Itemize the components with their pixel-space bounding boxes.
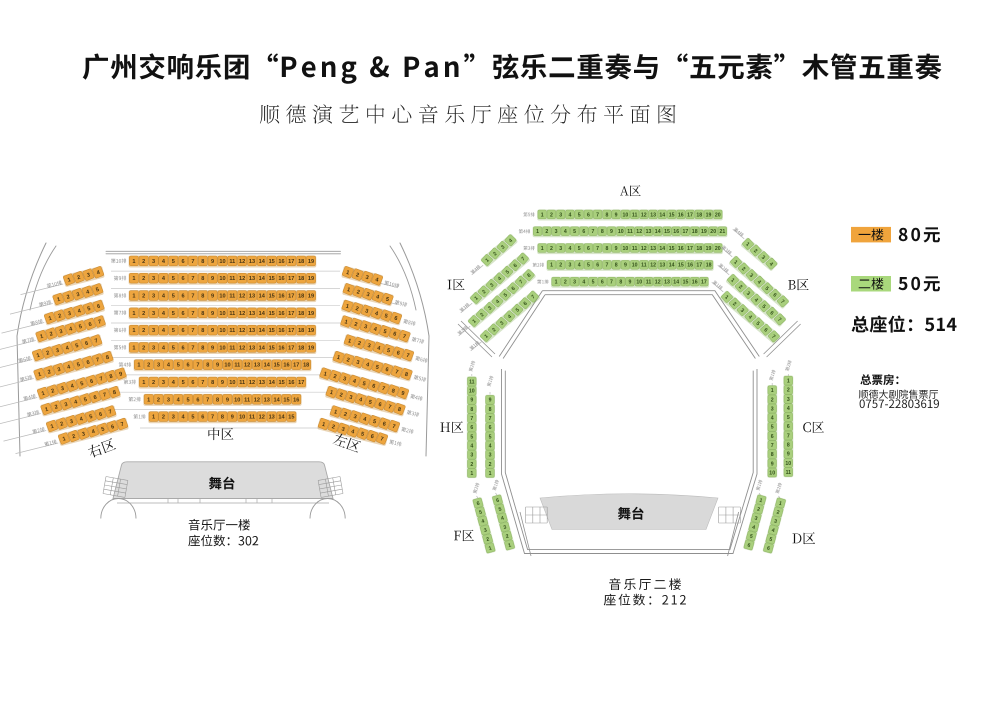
svg-text:9: 9 (231, 415, 234, 421)
svg-text:7: 7 (605, 263, 608, 269)
svg-text:8: 8 (201, 294, 204, 300)
svg-text:14: 14 (259, 328, 266, 334)
svg-text:18: 18 (303, 363, 309, 369)
svg-text:9: 9 (624, 263, 627, 269)
svg-text:10: 10 (234, 397, 240, 403)
svg-text:16: 16 (687, 263, 693, 269)
svg-text:8: 8 (211, 380, 214, 386)
svg-text:1: 1 (132, 259, 135, 265)
svg-text:15: 15 (683, 280, 689, 286)
svg-text:7: 7 (191, 276, 194, 282)
svg-text:6: 6 (182, 276, 185, 282)
svg-text:4: 4 (489, 443, 492, 449)
svg-text:18: 18 (696, 246, 702, 252)
svg-text:9: 9 (787, 452, 790, 458)
svg-text:12: 12 (239, 328, 245, 334)
svg-text:2: 2 (142, 276, 145, 282)
svg-text:2: 2 (162, 415, 165, 421)
svg-text:4: 4 (771, 416, 774, 422)
svg-text:4: 4 (470, 444, 473, 450)
svg-text:1: 1 (541, 246, 544, 252)
svg-text:2: 2 (142, 311, 145, 317)
svg-text:5: 5 (489, 434, 492, 440)
svg-text:20: 20 (715, 212, 721, 218)
svg-text:3: 3 (152, 311, 155, 317)
svg-text:6: 6 (587, 246, 590, 252)
svg-text:5: 5 (172, 259, 175, 265)
svg-text:17: 17 (687, 246, 693, 252)
svg-text:8: 8 (605, 246, 608, 252)
svg-text:11: 11 (244, 397, 250, 403)
svg-text:5: 5 (182, 380, 185, 386)
svg-text:4: 4 (568, 212, 571, 218)
svg-text:7: 7 (211, 415, 214, 421)
svg-text:3: 3 (157, 363, 160, 369)
svg-text:13: 13 (646, 229, 652, 235)
svg-text:6: 6 (470, 425, 473, 431)
svg-text:11: 11 (229, 294, 235, 300)
svg-text:11: 11 (627, 229, 633, 235)
svg-text:13: 13 (249, 345, 255, 351)
svg-text:19: 19 (308, 328, 314, 334)
svg-text:12: 12 (636, 229, 642, 235)
svg-text:2: 2 (559, 263, 562, 269)
svg-text:13: 13 (660, 263, 666, 269)
svg-text:15: 15 (669, 246, 675, 252)
svg-text:6: 6 (489, 425, 492, 431)
svg-text:14: 14 (259, 311, 266, 317)
svg-text:6: 6 (182, 259, 185, 265)
svg-text:8: 8 (601, 229, 604, 235)
svg-text:5: 5 (172, 294, 175, 300)
svg-text:1: 1 (137, 363, 140, 369)
svg-text:1: 1 (541, 212, 544, 218)
svg-text:19: 19 (706, 212, 712, 218)
svg-text:16: 16 (278, 294, 284, 300)
svg-text:8: 8 (201, 328, 204, 334)
svg-text:4: 4 (582, 280, 585, 286)
svg-text:13: 13 (650, 212, 656, 218)
svg-text:16: 16 (678, 246, 684, 252)
svg-text:19: 19 (308, 294, 314, 300)
svg-text:18: 18 (298, 276, 304, 282)
svg-text:9: 9 (211, 276, 214, 282)
svg-text:10: 10 (785, 461, 791, 467)
svg-text:8: 8 (615, 263, 618, 269)
svg-text:11: 11 (229, 328, 235, 334)
svg-text:4: 4 (568, 246, 571, 252)
svg-text:13: 13 (259, 380, 265, 386)
svg-text:12: 12 (641, 246, 647, 252)
svg-text:7: 7 (610, 280, 613, 286)
svg-text:10: 10 (219, 345, 225, 351)
svg-text:3: 3 (162, 380, 165, 386)
svg-text:1: 1 (550, 263, 553, 269)
svg-text:6: 6 (582, 229, 585, 235)
svg-text:11: 11 (234, 363, 240, 369)
svg-text:14: 14 (659, 246, 665, 252)
svg-text:10: 10 (618, 229, 624, 235)
svg-text:19: 19 (706, 246, 712, 252)
svg-text:3: 3 (569, 263, 572, 269)
svg-text:4: 4 (787, 406, 790, 412)
svg-text:19: 19 (308, 311, 314, 317)
svg-text:5: 5 (771, 425, 774, 431)
svg-text:2: 2 (771, 397, 774, 403)
svg-text:8: 8 (787, 443, 790, 449)
svg-text:5: 5 (573, 229, 576, 235)
svg-text:18: 18 (706, 263, 712, 269)
svg-text:8: 8 (619, 280, 622, 286)
svg-text:17: 17 (288, 276, 294, 282)
svg-text:2: 2 (142, 259, 145, 265)
svg-text:2: 2 (157, 397, 160, 403)
svg-text:16: 16 (283, 363, 289, 369)
svg-text:5: 5 (787, 415, 790, 421)
svg-text:17: 17 (288, 345, 294, 351)
svg-text:3: 3 (152, 328, 155, 334)
svg-text:7: 7 (787, 433, 790, 439)
svg-text:16: 16 (692, 280, 698, 286)
svg-text:6: 6 (182, 294, 185, 300)
svg-text:13: 13 (650, 246, 656, 252)
svg-text:3: 3 (152, 259, 155, 265)
svg-text:12: 12 (650, 263, 656, 269)
svg-text:13: 13 (664, 280, 670, 286)
svg-text:9: 9 (216, 363, 219, 369)
svg-text:9: 9 (211, 328, 214, 334)
svg-text:14: 14 (259, 345, 266, 351)
svg-text:13: 13 (269, 415, 275, 421)
svg-text:15: 15 (269, 259, 275, 265)
svg-text:2: 2 (142, 345, 145, 351)
svg-text:3: 3 (573, 280, 576, 286)
svg-text:11: 11 (632, 212, 638, 218)
svg-text:2: 2 (470, 462, 473, 468)
svg-text:11: 11 (229, 276, 235, 282)
svg-text:14: 14 (669, 263, 675, 269)
svg-text:18: 18 (298, 311, 304, 317)
svg-text:6: 6 (182, 311, 185, 317)
svg-text:16: 16 (288, 380, 294, 386)
svg-text:17: 17 (288, 259, 294, 265)
svg-text:19: 19 (701, 229, 707, 235)
svg-text:15: 15 (269, 276, 275, 282)
svg-text:15: 15 (274, 363, 280, 369)
svg-text:10: 10 (219, 259, 225, 265)
svg-text:13: 13 (249, 328, 255, 334)
svg-text:7: 7 (596, 246, 599, 252)
svg-text:10: 10 (219, 276, 225, 282)
svg-text:11: 11 (249, 415, 255, 421)
svg-text:2: 2 (564, 280, 567, 286)
svg-text:1: 1 (132, 311, 135, 317)
svg-text:7: 7 (191, 328, 194, 334)
svg-text:9: 9 (211, 311, 214, 317)
svg-text:8: 8 (605, 212, 608, 218)
svg-text:3: 3 (555, 229, 558, 235)
svg-text:14: 14 (259, 294, 266, 300)
svg-text:14: 14 (259, 276, 266, 282)
svg-text:9: 9 (470, 398, 473, 404)
svg-text:15: 15 (283, 397, 289, 403)
svg-text:16: 16 (673, 229, 679, 235)
svg-text:13: 13 (249, 294, 255, 300)
svg-text:5: 5 (191, 415, 194, 421)
svg-text:2: 2 (142, 294, 145, 300)
svg-text:3: 3 (489, 453, 492, 459)
svg-text:6: 6 (596, 263, 599, 269)
svg-text:7: 7 (191, 259, 194, 265)
svg-text:20: 20 (710, 229, 716, 235)
svg-text:10: 10 (219, 328, 225, 334)
svg-text:13: 13 (264, 397, 270, 403)
svg-text:15: 15 (669, 212, 675, 218)
svg-text:16: 16 (293, 397, 299, 403)
svg-text:19: 19 (308, 259, 314, 265)
svg-text:14: 14 (259, 259, 266, 265)
svg-text:5: 5 (177, 363, 180, 369)
svg-text:2: 2 (489, 462, 492, 468)
svg-text:11: 11 (641, 263, 647, 269)
svg-text:3: 3 (559, 212, 562, 218)
svg-text:15: 15 (269, 345, 275, 351)
svg-text:11: 11 (229, 345, 235, 351)
svg-text:15: 15 (288, 415, 294, 421)
svg-text:14: 14 (278, 415, 285, 421)
svg-text:15: 15 (269, 328, 275, 334)
svg-text:1: 1 (142, 380, 145, 386)
svg-text:17: 17 (683, 229, 689, 235)
svg-text:13: 13 (249, 311, 255, 317)
svg-text:9: 9 (211, 345, 214, 351)
svg-text:7: 7 (592, 229, 595, 235)
svg-text:9: 9 (615, 212, 618, 218)
svg-text:7: 7 (771, 443, 774, 449)
svg-text:8: 8 (221, 415, 224, 421)
svg-text:2: 2 (787, 388, 790, 394)
svg-text:8: 8 (201, 311, 204, 317)
svg-text:5: 5 (592, 280, 595, 286)
svg-text:15: 15 (269, 294, 275, 300)
svg-text:4: 4 (564, 229, 567, 235)
svg-text:8: 8 (201, 345, 204, 351)
svg-text:15: 15 (278, 380, 284, 386)
svg-text:5: 5 (172, 276, 175, 282)
svg-text:19: 19 (308, 345, 314, 351)
svg-text:21: 21 (720, 229, 726, 235)
svg-text:17: 17 (687, 212, 693, 218)
svg-text:9: 9 (615, 246, 618, 252)
svg-text:17: 17 (298, 380, 304, 386)
svg-text:1: 1 (536, 229, 539, 235)
svg-text:14: 14 (673, 280, 679, 286)
svg-text:12: 12 (641, 212, 647, 218)
svg-text:6: 6 (587, 212, 590, 218)
svg-text:7: 7 (196, 363, 199, 369)
svg-text:6: 6 (771, 434, 774, 440)
svg-text:2: 2 (550, 212, 553, 218)
svg-text:11: 11 (469, 379, 475, 385)
svg-text:1: 1 (470, 471, 473, 477)
svg-text:3: 3 (152, 276, 155, 282)
svg-text:9: 9 (489, 398, 492, 404)
svg-text:13: 13 (249, 276, 255, 282)
svg-text:9: 9 (211, 259, 214, 265)
svg-text:12: 12 (259, 415, 265, 421)
svg-text:1: 1 (132, 276, 135, 282)
svg-text:6: 6 (187, 363, 190, 369)
svg-text:2: 2 (550, 246, 553, 252)
svg-text:9: 9 (226, 397, 229, 403)
svg-text:9: 9 (771, 461, 774, 467)
svg-text:5: 5 (172, 328, 175, 334)
svg-text:18: 18 (298, 328, 304, 334)
svg-text:5: 5 (172, 311, 175, 317)
svg-text:1: 1 (489, 471, 492, 477)
svg-text:1: 1 (771, 388, 774, 394)
svg-text:14: 14 (269, 380, 276, 386)
svg-text:6: 6 (182, 345, 185, 351)
svg-text:7: 7 (489, 416, 492, 422)
svg-text:12: 12 (655, 280, 661, 286)
svg-text:7: 7 (470, 416, 473, 422)
svg-text:12: 12 (244, 363, 250, 369)
svg-text:3: 3 (167, 397, 170, 403)
svg-text:13: 13 (254, 363, 260, 369)
svg-text:10: 10 (219, 311, 225, 317)
svg-text:1: 1 (787, 379, 790, 385)
svg-text:3: 3 (152, 345, 155, 351)
svg-text:17: 17 (701, 280, 707, 286)
svg-text:10: 10 (636, 280, 642, 286)
svg-text:9: 9 (221, 380, 224, 386)
svg-text:9: 9 (211, 294, 214, 300)
svg-text:10: 10 (623, 212, 629, 218)
svg-text:11: 11 (786, 470, 792, 476)
svg-text:15: 15 (664, 229, 670, 235)
svg-text:18: 18 (298, 345, 304, 351)
svg-text:16: 16 (278, 259, 284, 265)
svg-text:8: 8 (201, 259, 204, 265)
svg-text:3: 3 (172, 415, 175, 421)
svg-text:1: 1 (152, 415, 155, 421)
svg-text:18: 18 (298, 294, 304, 300)
svg-text:11: 11 (229, 259, 235, 265)
svg-text:16: 16 (278, 328, 284, 334)
svg-text:17: 17 (288, 328, 294, 334)
svg-text:10: 10 (229, 380, 235, 386)
svg-text:7: 7 (191, 345, 194, 351)
svg-text:8: 8 (771, 452, 774, 458)
svg-text:11: 11 (632, 246, 638, 252)
svg-text:7: 7 (201, 380, 204, 386)
svg-text:6: 6 (182, 328, 185, 334)
svg-text:3: 3 (152, 294, 155, 300)
svg-text:12: 12 (239, 311, 245, 317)
svg-text:5: 5 (578, 246, 581, 252)
svg-text:8: 8 (489, 407, 492, 413)
svg-text:18: 18 (692, 229, 698, 235)
svg-text:14: 14 (655, 229, 661, 235)
svg-text:5: 5 (587, 263, 590, 269)
svg-text:10: 10 (224, 363, 230, 369)
svg-text:9: 9 (629, 280, 632, 286)
svg-text:17: 17 (288, 294, 294, 300)
svg-text:14: 14 (273, 397, 280, 403)
svg-text:5: 5 (172, 345, 175, 351)
svg-text:8: 8 (216, 397, 219, 403)
svg-text:5: 5 (187, 397, 190, 403)
svg-text:11: 11 (229, 311, 235, 317)
svg-text:7: 7 (596, 212, 599, 218)
svg-text:8: 8 (201, 276, 204, 282)
svg-text:2: 2 (152, 380, 155, 386)
svg-text:15: 15 (269, 311, 275, 317)
svg-text:1: 1 (147, 397, 150, 403)
svg-text:16: 16 (278, 276, 284, 282)
svg-text:7: 7 (206, 397, 209, 403)
svg-text:16: 16 (678, 212, 684, 218)
svg-text:6: 6 (201, 415, 204, 421)
svg-text:10: 10 (469, 389, 475, 395)
svg-text:1: 1 (132, 328, 135, 334)
svg-text:2: 2 (545, 229, 548, 235)
svg-text:19: 19 (308, 276, 314, 282)
svg-text:10: 10 (632, 263, 638, 269)
svg-text:4: 4 (578, 263, 581, 269)
svg-text:16: 16 (278, 311, 284, 317)
svg-text:6: 6 (196, 397, 199, 403)
svg-text:8: 8 (470, 407, 473, 413)
svg-text:17: 17 (293, 363, 299, 369)
svg-text:12: 12 (254, 397, 260, 403)
svg-text:6: 6 (787, 424, 790, 430)
svg-text:2: 2 (142, 328, 145, 334)
svg-text:13: 13 (249, 259, 255, 265)
svg-text:7: 7 (191, 294, 194, 300)
svg-text:6: 6 (601, 280, 604, 286)
svg-text:12: 12 (239, 276, 245, 282)
svg-text:1: 1 (132, 345, 135, 351)
svg-text:7: 7 (191, 311, 194, 317)
svg-text:5: 5 (578, 212, 581, 218)
svg-text:10: 10 (239, 415, 245, 421)
svg-text:20: 20 (715, 246, 721, 252)
svg-text:2: 2 (147, 363, 150, 369)
svg-text:12: 12 (239, 259, 245, 265)
svg-text:11: 11 (646, 280, 652, 286)
svg-text:15: 15 (678, 263, 684, 269)
svg-text:8: 8 (206, 363, 209, 369)
svg-text:9: 9 (610, 229, 613, 235)
svg-text:3: 3 (771, 406, 774, 412)
svg-text:12: 12 (249, 380, 255, 386)
svg-text:10: 10 (769, 471, 775, 477)
svg-text:16: 16 (278, 345, 284, 351)
svg-text:17: 17 (288, 311, 294, 317)
svg-text:1: 1 (555, 280, 558, 286)
svg-text:18: 18 (696, 212, 702, 218)
svg-text:10: 10 (623, 246, 629, 252)
svg-text:3: 3 (787, 397, 790, 403)
svg-text:11: 11 (239, 380, 245, 386)
svg-text:17: 17 (696, 263, 702, 269)
svg-text:3: 3 (559, 246, 562, 252)
svg-text:5: 5 (470, 434, 473, 440)
svg-text:10: 10 (219, 294, 225, 300)
svg-text:18: 18 (298, 259, 304, 265)
